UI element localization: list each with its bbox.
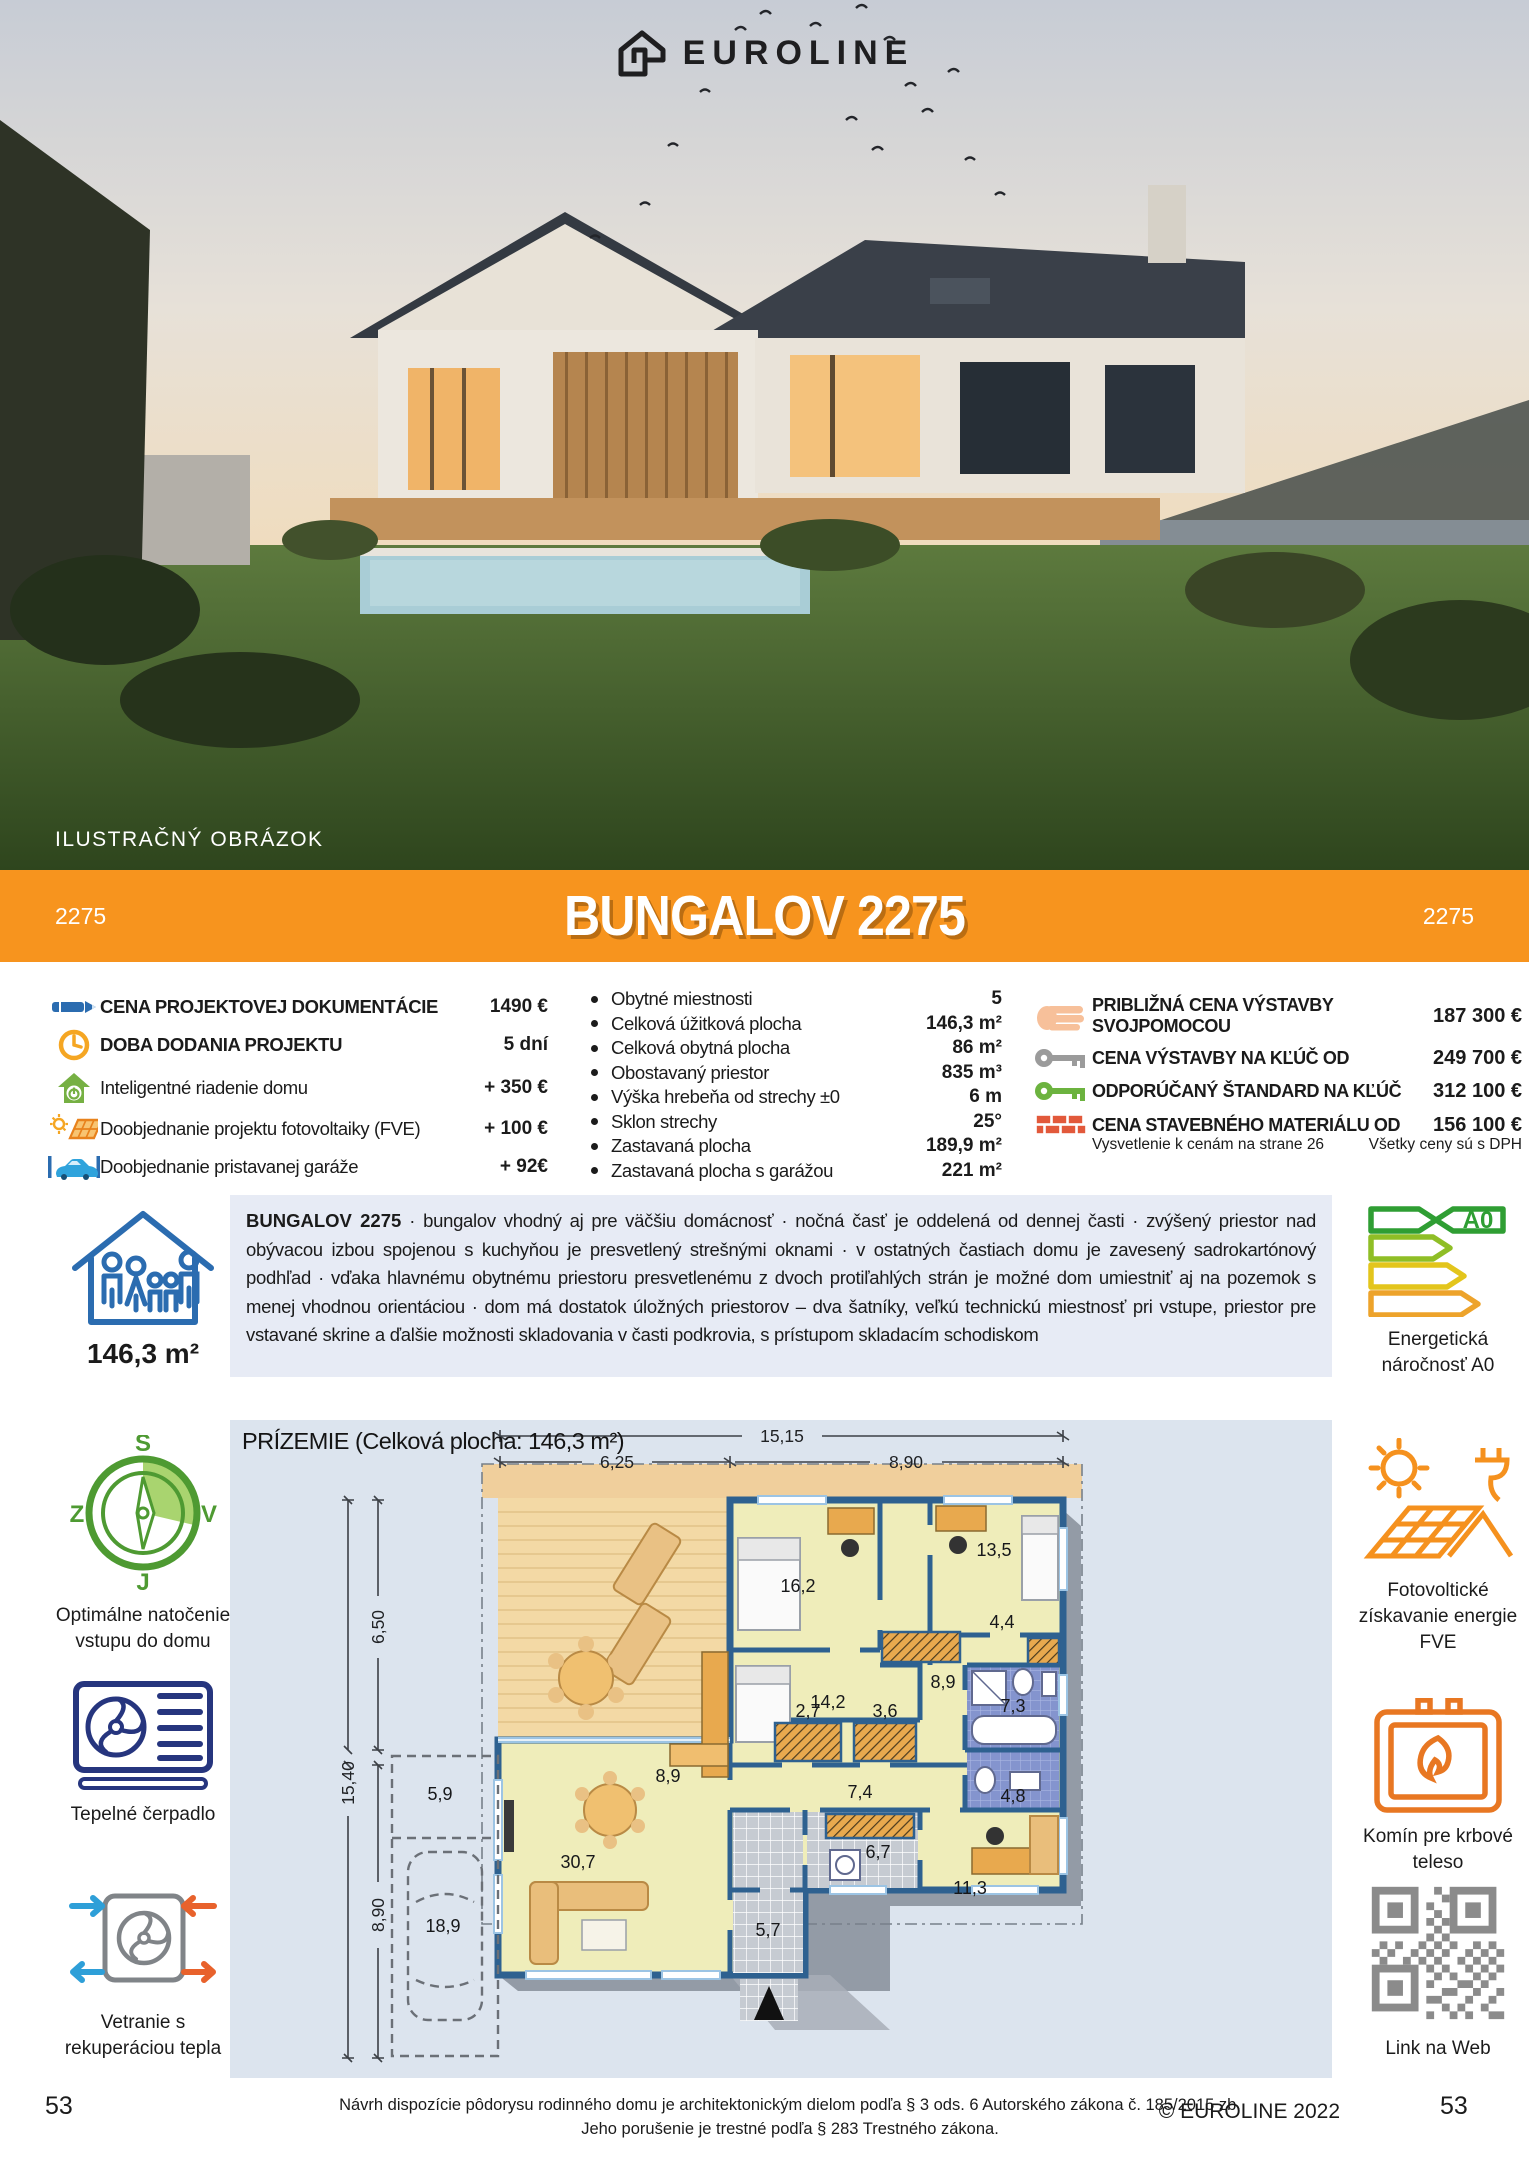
compass-caption: Optimálne natočenie vstupu do domu	[48, 1603, 238, 1655]
spec-row: Zastavaná plocha s garážou221 m²	[577, 1160, 1002, 1182]
spec-row: Zastavaná plocha189,9 m²	[577, 1135, 1002, 1157]
price-value: 187 300 €	[1412, 1005, 1522, 1028]
bricks-icon	[1030, 1112, 1092, 1138]
heat-pump-feature: Tepelné čerpadlo	[48, 1680, 238, 1828]
spec-row: Celková úžitková plocha146,3 m²	[577, 1013, 1002, 1035]
description-box: BUNGALOV 2275 · bungalov vhodný aj pre v…	[230, 1195, 1332, 1377]
spec-row: Výška hrebeňa od strechy ±06 m	[577, 1086, 1002, 1108]
spec-row: Celková obytná plocha86 m²	[577, 1037, 1002, 1059]
family-house-indicator	[48, 1200, 238, 1328]
spec-label: Výška hrebeňa od strechy ±0	[611, 1086, 892, 1108]
spec-label: Celková obytná plocha	[611, 1037, 892, 1059]
ventilation-icon	[68, 1878, 218, 2000]
dim-left-upper: 6,50	[368, 1610, 388, 1644]
key-green-icon	[1030, 1079, 1092, 1103]
room-entry: 5,7	[755, 1920, 780, 1940]
spec-row: Obytné miestnosti5	[577, 988, 1002, 1010]
floorplan-panel: 15,15 6,25 8,90 15,40 6,50 8,90 16,2 13,…	[230, 1420, 1332, 2078]
compass-e: V	[201, 1501, 217, 1528]
photo-caption: ILUSTRAČNÝ OBRÁZOK	[55, 828, 324, 852]
pricing-right: PRIBLIŽNÁ CENA VÝSTAVBY SVOJPOMOCOU 187 …	[1030, 995, 1522, 1147]
spec-label: Obytné miestnosti	[611, 988, 892, 1010]
spec-label: Zastavaná plocha s garážou	[611, 1160, 892, 1182]
price-note-right: Všetky ceny sú s DPH	[1369, 1136, 1522, 1154]
spec-label: Sklon strechy	[611, 1111, 892, 1133]
description-lead: BUNGALOV 2275	[246, 1210, 401, 1231]
spec-value: 835 m³	[892, 1062, 1002, 1084]
spec-label: Celková úžitková plocha	[611, 1013, 892, 1035]
spec-value: 189,9 m²	[892, 1135, 1002, 1157]
catalog-page: EUROLINE ILUSTRAČNÝ OBRÁZOK 2275 BUNGALO…	[0, 0, 1529, 2160]
dim-left-lower: 8,90	[368, 1898, 388, 1932]
room-wardrobe1: 2,7	[795, 1701, 820, 1721]
energy-label-icon: A0	[1363, 1205, 1513, 1317]
pv-caption: Fotovoltické získavanie energie FVE	[1352, 1578, 1524, 1656]
price-value: 249 700 €	[1412, 1047, 1522, 1070]
room-dining: 8,9	[655, 1766, 680, 1786]
qr-caption: Link na Web	[1385, 2036, 1490, 2062]
price-row: Inteligentné riadenie domu + 350 €	[48, 1071, 548, 1105]
price-label: CENA VÝSTAVBY NA KĽÚČ OD	[1092, 1048, 1412, 1069]
hand-icon	[1030, 998, 1092, 1034]
dim-left-total: 15,40	[338, 1761, 358, 1805]
compass-w: Z	[70, 1501, 85, 1528]
price-row: ODPORÚČANÝ ŠTANDARD NA KĽÚČ 312 100 €	[1030, 1079, 1522, 1103]
smart-home-icon	[48, 1071, 100, 1105]
price-value: 312 100 €	[1412, 1080, 1522, 1103]
price-value: + 100 €	[453, 1118, 548, 1140]
spec-row: Obostavaný priestor835 m³	[577, 1062, 1002, 1084]
compass-icon: S V J Z	[68, 1435, 218, 1593]
room-hall: 7,4	[847, 1782, 872, 1802]
project-code-right: 2275	[1354, 903, 1529, 930]
photovoltaic-icon	[1361, 1438, 1516, 1568]
orientation-indicator: S V J Z Optimálne natočenie vstupu do do…	[48, 1435, 238, 1655]
tv	[504, 1800, 514, 1852]
energy-class-indicator: A0 Energetická náročnosť A0	[1352, 1205, 1524, 1379]
room-garage: 18,9	[425, 1916, 460, 1936]
heat-pump-caption: Tepelné čerpadlo	[71, 1802, 216, 1828]
room-bedroom1: 16,2	[780, 1576, 815, 1596]
room-corridor: 8,9	[930, 1672, 955, 1692]
price-row: PRIBLIŽNÁ CENA VÝSTAVBY SVOJPOMOCOU 187 …	[1030, 995, 1522, 1037]
spec-value: 221 m²	[892, 1160, 1002, 1182]
spec-row: Sklon strechy25°	[577, 1111, 1002, 1133]
price-label: CENA STAVEBNÉHO MATERIÁLU OD	[1092, 1115, 1412, 1136]
euroline-logo: EUROLINE	[0, 28, 1529, 78]
compass-n: S	[135, 1435, 151, 1457]
page-number-right: 53	[1440, 2092, 1468, 2121]
price-notes: Vysvetlenie k cenám na strane 26 Všetky …	[1030, 1136, 1522, 1154]
spec-label: Zastavaná plocha	[611, 1135, 892, 1157]
room-living: 30,7	[560, 1852, 595, 1872]
price-label: CENA PROJEKTOVEJ DOKUMENTÁCIE	[100, 996, 453, 1018]
page-number-left: 53	[45, 2092, 73, 2121]
pencil-icon	[48, 995, 100, 1019]
solar-panel-icon	[48, 1114, 100, 1144]
price-value: 5 dní	[453, 1034, 548, 1056]
house-family-icon	[63, 1200, 223, 1328]
ventilation-caption: Vetranie s rekuperáciou tepla	[48, 2010, 238, 2062]
spec-value: 86 m²	[892, 1037, 1002, 1059]
pv-feature: Fotovoltické získavanie energie FVE	[1352, 1438, 1524, 1656]
description-text: · bungalov vhodný aj pre väčšiu domácnos…	[246, 1210, 1316, 1345]
price-label: DOBA DODANIA PROJEKTU	[100, 1034, 453, 1056]
price-row: CENA STAVEBNÉHO MATERIÁLU OD 156 100 €	[1030, 1112, 1522, 1138]
energy-badge: A0	[1463, 1207, 1494, 1234]
clock-icon	[48, 1028, 100, 1062]
heat-pump-icon	[68, 1680, 218, 1792]
total-area-label: 146,3 m²	[48, 1338, 238, 1370]
room-storage: 4,4	[989, 1612, 1014, 1632]
room-garage-front: 5,9	[427, 1784, 452, 1804]
logo-text: EUROLINE	[683, 34, 915, 73]
room-bath1: 7,3	[1000, 1696, 1025, 1716]
floorplan-drawing: 15,15 6,25 8,90 15,40 6,50 8,90 16,2 13,…	[230, 1420, 1332, 2078]
price-value: + 350 €	[453, 1077, 548, 1099]
page-title: BUNGALOV 2275	[246, 883, 1284, 949]
price-label: Doobjednanie pristavanej garáže	[100, 1156, 453, 1178]
qr-code-icon[interactable]	[1365, 1880, 1511, 2026]
spec-list: Obytné miestnosti5 Celková úžitková ploc…	[577, 988, 1002, 1184]
price-label: ODPORÚČANÝ ŠTANDARD NA KĽÚČ	[1092, 1081, 1412, 1102]
key-gray-icon	[1030, 1046, 1092, 1070]
chimney-fireplace-icon	[1363, 1698, 1513, 1814]
spec-value: 25°	[892, 1111, 1002, 1133]
room-bath2: 4,8	[1000, 1786, 1025, 1806]
room-wardrobe2: 3,6	[872, 1701, 897, 1721]
title-banner: 2275 BUNGALOV 2275 2275	[0, 870, 1529, 962]
price-value: 1490 €	[453, 996, 548, 1018]
house-photo	[0, 0, 1529, 870]
roof-overhang	[482, 1464, 1082, 1498]
price-row: Doobjednanie projektu fotovoltaiky (FVE)…	[48, 1114, 548, 1144]
compass-s: J	[136, 1569, 149, 1593]
chimney-feature: Komín pre krbové teleso	[1352, 1698, 1524, 1876]
price-row: CENA VÝSTAVBY NA KĽÚČ OD 249 700 €	[1030, 1046, 1522, 1070]
euroline-house-icon	[615, 28, 669, 78]
terrace	[498, 1498, 730, 1740]
spec-value: 5	[892, 988, 1002, 1010]
floorplan-title: PRÍZEMIE (Celková plocha: 146,3 m²)	[242, 1428, 624, 1455]
copyright: © EUROLINE 2022	[1090, 2100, 1340, 2124]
qr-link[interactable]: Link na Web	[1352, 1880, 1524, 2062]
room-office: 11,3	[953, 1878, 987, 1898]
dim-top-left: 6,25	[600, 1452, 634, 1472]
room-bedroom2: 13,5	[976, 1540, 1011, 1560]
pricing-left: CENA PROJEKTOVEJ DOKUMENTÁCIE 1490 € DOB…	[48, 995, 548, 1190]
price-value: 156 100 €	[1412, 1114, 1522, 1137]
ventilation-feature: Vetranie s rekuperáciou tepla	[48, 1878, 238, 2062]
price-note-left: Vysvetlenie k cenám na strane 26	[1030, 1136, 1369, 1154]
price-label: Doobjednanie projektu fotovoltaiky (FVE)	[100, 1118, 453, 1140]
bathtub	[972, 1716, 1056, 1744]
price-row: Doobjednanie pristavanej garáže + 92€	[48, 1153, 548, 1181]
dim-top-right: 8,90	[889, 1452, 923, 1472]
price-label: PRIBLIŽNÁ CENA VÝSTAVBY SVOJPOMOCOU	[1092, 995, 1412, 1037]
price-row: CENA PROJEKTOVEJ DOKUMENTÁCIE 1490 €	[48, 995, 548, 1019]
price-label: Inteligentné riadenie domu	[100, 1077, 453, 1099]
energy-caption: Energetická náročnosť A0	[1352, 1327, 1524, 1379]
price-value: + 92€	[453, 1156, 548, 1178]
garage-car-icon	[48, 1153, 100, 1181]
spec-label: Obostavaný priestor	[611, 1062, 892, 1084]
chimney-caption: Komín pre krbové teleso	[1352, 1824, 1524, 1876]
price-row: DOBA DODANIA PROJEKTU 5 dní	[48, 1028, 548, 1062]
project-code-left: 2275	[0, 903, 175, 930]
dim-top-total: 15,15	[760, 1426, 804, 1446]
spec-value: 6 m	[892, 1086, 1002, 1108]
spec-value: 146,3 m²	[892, 1013, 1002, 1035]
room-tech: 6,7	[865, 1842, 890, 1862]
